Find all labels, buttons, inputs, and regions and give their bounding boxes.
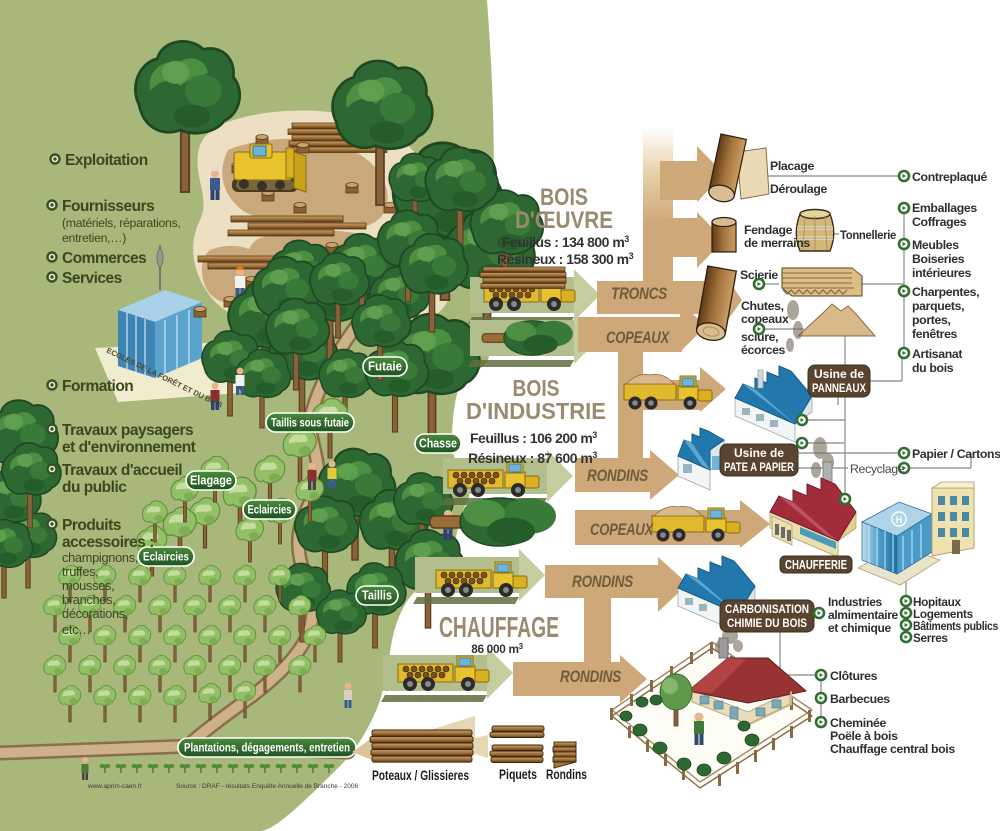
svg-text:Services: Services: [62, 270, 122, 287]
svg-text:Meubles: Meubles: [912, 238, 959, 252]
svg-text:Plantations, dégagements, entr: Plantations, dégagements, entretien: [184, 743, 350, 755]
svg-text:etc…: etc…: [62, 622, 91, 637]
svg-text:de merrains: de merrains: [744, 236, 810, 250]
svg-text:Usine de: Usine de: [814, 367, 864, 381]
svg-text:Travaux d'accueil: Travaux d'accueil: [62, 462, 182, 479]
svg-text:Elagage: Elagage: [190, 474, 232, 488]
svg-text:Fournisseurs: Fournisseurs: [62, 198, 154, 215]
svg-text:et chimique: et chimique: [828, 621, 892, 635]
svg-text:Artisanat: Artisanat: [912, 347, 962, 361]
svg-text:mousses,: mousses,: [62, 578, 114, 593]
svg-text:Chutes,: Chutes,: [741, 299, 784, 313]
svg-text:entretien,…): entretien,…): [62, 231, 126, 245]
svg-text:Feuillus : 106 200 m3: Feuillus : 106 200 m3: [470, 430, 597, 446]
svg-text:Barbecues: Barbecues: [830, 692, 890, 706]
svg-text:Chauffage central bois: Chauffage central bois: [830, 742, 955, 756]
svg-text:Piquets: Piquets: [499, 767, 537, 782]
svg-text:Boiseries: Boiseries: [912, 252, 965, 266]
svg-text:Eclaircies: Eclaircies: [143, 552, 189, 564]
svg-text:TRONCS: TRONCS: [611, 285, 667, 303]
svg-text:H: H: [896, 515, 903, 525]
svg-text:(matériels, réparations,: (matériels, réparations,: [62, 216, 181, 230]
svg-text:Taillis sous futaie: Taillis sous futaie: [271, 418, 349, 430]
svg-text:Rondins: Rondins: [546, 767, 587, 782]
svg-text:COPEAUX: COPEAUX: [606, 329, 670, 347]
svg-text:branches,: branches,: [62, 592, 116, 607]
svg-text:Clôtures: Clôtures: [830, 669, 878, 683]
svg-text:CARBONISATION: CARBONISATION: [725, 602, 809, 616]
svg-text:Exploitation: Exploitation: [65, 152, 148, 169]
svg-text:Emballages: Emballages: [912, 201, 977, 215]
svg-text:Eclaircies: Eclaircies: [248, 505, 292, 517]
svg-text:Taillis: Taillis: [362, 589, 392, 603]
svg-text:truffes,: truffes,: [62, 564, 98, 579]
svg-text:D'INDUSTRIE: D'INDUSTRIE: [466, 398, 606, 424]
svg-text:RONDINS: RONDINS: [587, 467, 648, 485]
svg-text:CHAUFFERIE: CHAUFFERIE: [785, 558, 847, 572]
svg-text:Poële à bois: Poële à bois: [830, 729, 898, 743]
svg-text:Papier / Cartons: Papier / Cartons: [912, 447, 1000, 461]
svg-text:www.aprim-caen.fr: www.aprim-caen.fr: [87, 783, 143, 790]
svg-text:COPEAUX: COPEAUX: [590, 521, 654, 539]
svg-text:Recyclage: Recyclage: [850, 462, 905, 476]
svg-text:PANNEAUX: PANNEAUX: [812, 381, 866, 395]
svg-text:PATE A PAPIER: PATE A PAPIER: [724, 460, 794, 474]
svg-text:Fendage: Fendage: [744, 223, 793, 237]
svg-text:du bois: du bois: [912, 361, 954, 375]
svg-text:CHIMIE DU BOIS: CHIMIE DU BOIS: [727, 616, 807, 630]
svg-text:Cheminée: Cheminée: [830, 716, 886, 730]
svg-text:almimentaire: almimentaire: [828, 608, 899, 622]
svg-text:Résineux : 87 600 m3: Résineux : 87 600 m3: [468, 450, 597, 466]
svg-text:Placage: Placage: [770, 159, 815, 173]
svg-text:Serres: Serres: [913, 631, 948, 645]
svg-text:Chasse: Chasse: [419, 437, 457, 451]
svg-text:RONDINS: RONDINS: [560, 668, 621, 686]
svg-text:Contreplaqué: Contreplaqué: [912, 170, 988, 184]
svg-text:Résineux : 158 300 m3: Résineux : 158 300 m3: [497, 251, 634, 267]
svg-text:Industries: Industries: [828, 595, 883, 609]
svg-text:Commerces: Commerces: [62, 250, 146, 267]
svg-text:intérieures: intérieures: [912, 266, 972, 280]
svg-text:fenêtres: fenêtres: [912, 327, 958, 341]
svg-text:RONDINS: RONDINS: [572, 573, 633, 591]
svg-text:Tonnellerie: Tonnellerie: [840, 228, 896, 242]
svg-text:CHAUFFAGE: CHAUFFAGE: [439, 612, 559, 644]
svg-text:et d'environnement: et d'environnement: [62, 439, 196, 456]
svg-text:accessoires :: accessoires :: [62, 534, 154, 551]
svg-text:portes,: portes,: [912, 313, 951, 327]
svg-text:Futaie: Futaie: [368, 360, 402, 374]
svg-text:Poteaux / Glissieres: Poteaux / Glissieres: [372, 768, 469, 783]
svg-text:86 000 m3: 86 000 m3: [471, 642, 523, 656]
svg-text:Produits: Produits: [62, 517, 121, 534]
svg-text:décorations,: décorations,: [62, 606, 128, 621]
svg-text:D'ŒUVRE: D'ŒUVRE: [515, 207, 613, 234]
svg-text:Source : DRAF - résultats Enqu: Source : DRAF - résultats Enquête Annuel…: [176, 783, 358, 790]
svg-text:Feuillus : 134 800 m3: Feuillus : 134 800 m3: [502, 234, 629, 250]
svg-text:Déroulage: Déroulage: [770, 182, 827, 196]
svg-text:parquets,: parquets,: [912, 299, 964, 313]
svg-text:du public: du public: [62, 479, 127, 496]
svg-text:Formation: Formation: [62, 378, 133, 395]
svg-text:copeaux: copeaux: [741, 312, 789, 326]
svg-text:Usine de: Usine de: [734, 446, 784, 460]
svg-text:Travaux paysagers: Travaux paysagers: [62, 422, 193, 439]
svg-text:Coffrages: Coffrages: [912, 215, 967, 229]
svg-text:champignons,: champignons,: [62, 550, 138, 565]
svg-text:Charpentes,: Charpentes,: [912, 285, 979, 299]
svg-text:écorces: écorces: [741, 343, 786, 357]
